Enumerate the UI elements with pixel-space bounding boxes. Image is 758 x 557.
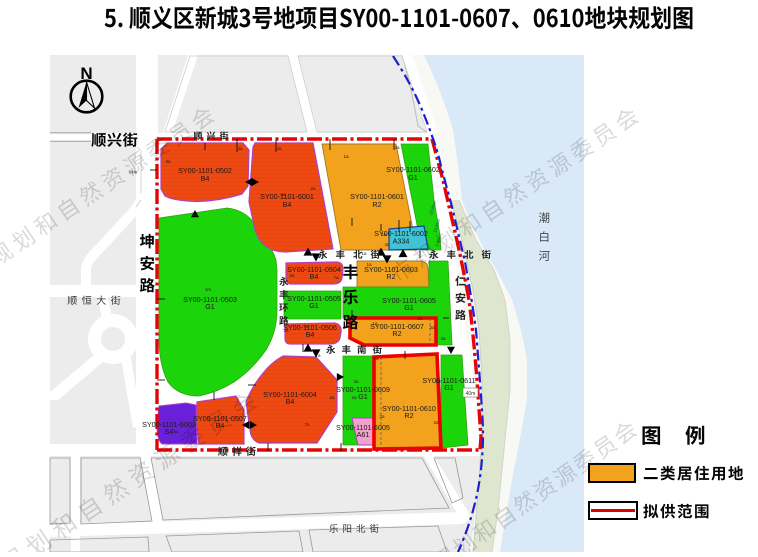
svg-text:7a: 7a (303, 324, 309, 329)
svg-text:2a: 2a (394, 145, 400, 150)
svg-text:G1: G1 (444, 383, 454, 392)
svg-text:1m: 1m (205, 287, 212, 292)
svg-text:A61: A61 (357, 430, 370, 439)
svg-text:2a: 2a (329, 395, 335, 400)
svg-text:3a: 3a (353, 379, 359, 384)
svg-text:1a: 1a (372, 321, 378, 326)
svg-text:B4: B4 (201, 174, 210, 183)
svg-text:1a: 1a (381, 232, 387, 237)
svg-text:2a: 2a (310, 186, 316, 191)
svg-text:1a: 1a (343, 154, 349, 159)
svg-text:7a: 7a (304, 422, 310, 427)
svg-text:3a: 3a (165, 159, 171, 164)
svg-text:G1: G1 (408, 173, 418, 182)
svg-text:B4: B4 (286, 397, 295, 406)
svg-text:2a: 2a (280, 192, 286, 197)
svg-text:3a: 3a (283, 328, 289, 333)
svg-text:2a: 2a (379, 414, 385, 419)
svg-text:2a: 2a (433, 420, 439, 425)
svg-text:G1: G1 (309, 301, 319, 310)
svg-text:S4: S4 (165, 427, 174, 436)
svg-text:3a: 3a (384, 242, 390, 247)
svg-text:5a: 5a (289, 273, 295, 278)
svg-text:B4: B4 (310, 272, 319, 281)
svg-text:1a: 1a (366, 262, 372, 267)
svg-text:R2: R2 (392, 329, 401, 338)
svg-text:1a: 1a (361, 251, 367, 256)
svg-text:3a: 3a (440, 336, 446, 341)
svg-text:G1: G1 (404, 303, 414, 312)
svg-text:N: N (80, 64, 92, 83)
svg-text:40m: 40m (466, 391, 476, 397)
svg-text:2a: 2a (373, 356, 379, 361)
svg-text:3a: 3a (429, 325, 435, 330)
svg-text:R2: R2 (372, 200, 381, 209)
svg-text:7a: 7a (315, 353, 321, 358)
svg-text:R2: R2 (404, 411, 413, 420)
svg-text:7a: 7a (333, 275, 339, 280)
svg-text:4a: 4a (276, 146, 282, 151)
svg-text:B4: B4 (283, 200, 292, 209)
svg-text:B4: B4 (306, 330, 315, 339)
svg-text:2a: 2a (351, 395, 357, 400)
svg-text:G1: G1 (358, 392, 368, 401)
svg-text:A334: A334 (393, 237, 410, 246)
svg-text:2a: 2a (435, 379, 441, 384)
svg-text:2a: 2a (417, 316, 423, 321)
svg-text:4a: 4a (237, 146, 243, 151)
svg-text:R2: R2 (386, 272, 395, 281)
svg-text:G1: G1 (205, 302, 215, 311)
svg-text:5a: 5a (173, 429, 179, 434)
